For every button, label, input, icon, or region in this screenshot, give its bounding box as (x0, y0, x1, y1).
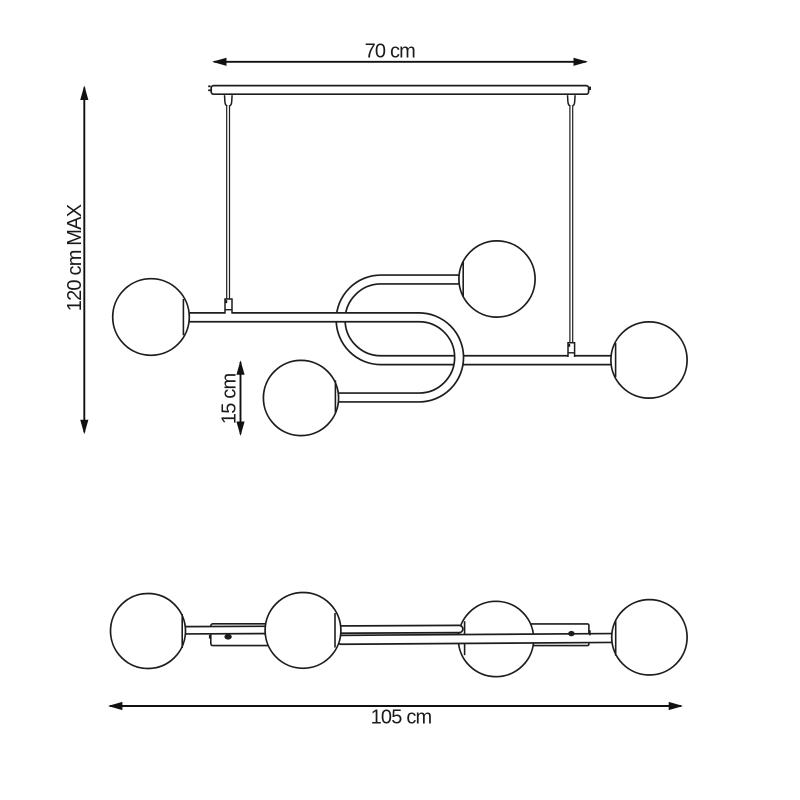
svg-text:105 cm: 105 cm (371, 707, 432, 729)
svg-text:15 cm: 15 cm (218, 374, 240, 425)
svg-text:120 cm MAX: 120 cm MAX (64, 204, 86, 311)
svg-text:70 cm: 70 cm (365, 40, 416, 62)
